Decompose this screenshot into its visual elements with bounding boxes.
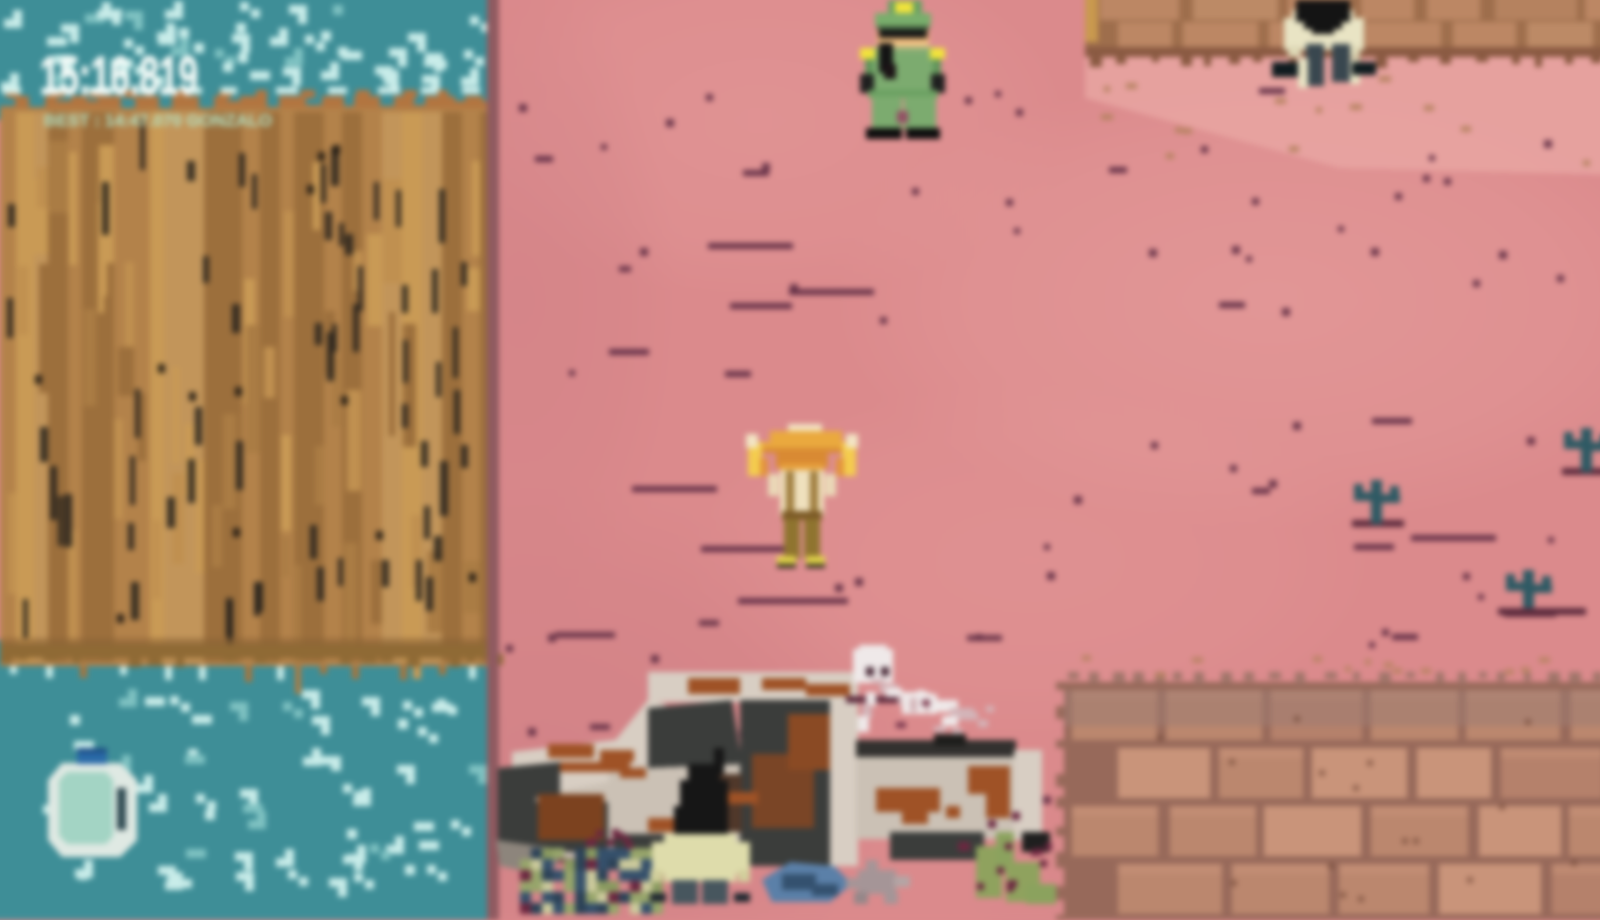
svg-text:15:16.819: 15:16.819 <box>40 45 198 105</box>
svg-text:BEST : 14:47.070 GONZALO: BEST : 14:47.070 GONZALO <box>44 111 272 130</box>
